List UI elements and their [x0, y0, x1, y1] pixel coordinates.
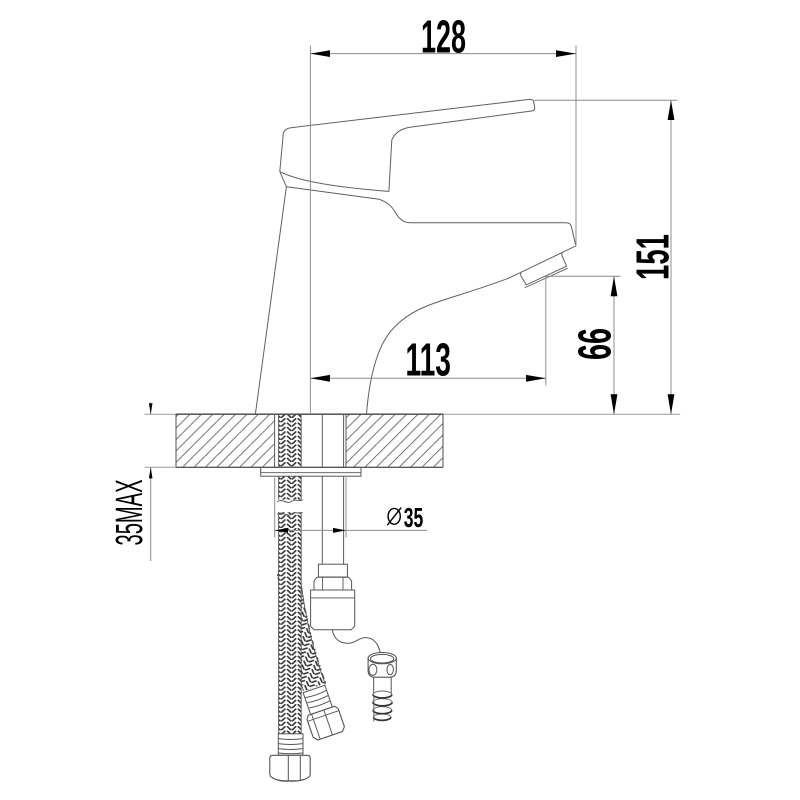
svg-text:128: 128	[421, 10, 466, 62]
svg-text:151: 151	[627, 234, 679, 280]
svg-text:35MAX: 35MAX	[109, 480, 151, 546]
svg-text:66: 66	[569, 328, 621, 360]
svg-text:113: 113	[405, 334, 451, 386]
svg-text:35: 35	[404, 502, 424, 533]
